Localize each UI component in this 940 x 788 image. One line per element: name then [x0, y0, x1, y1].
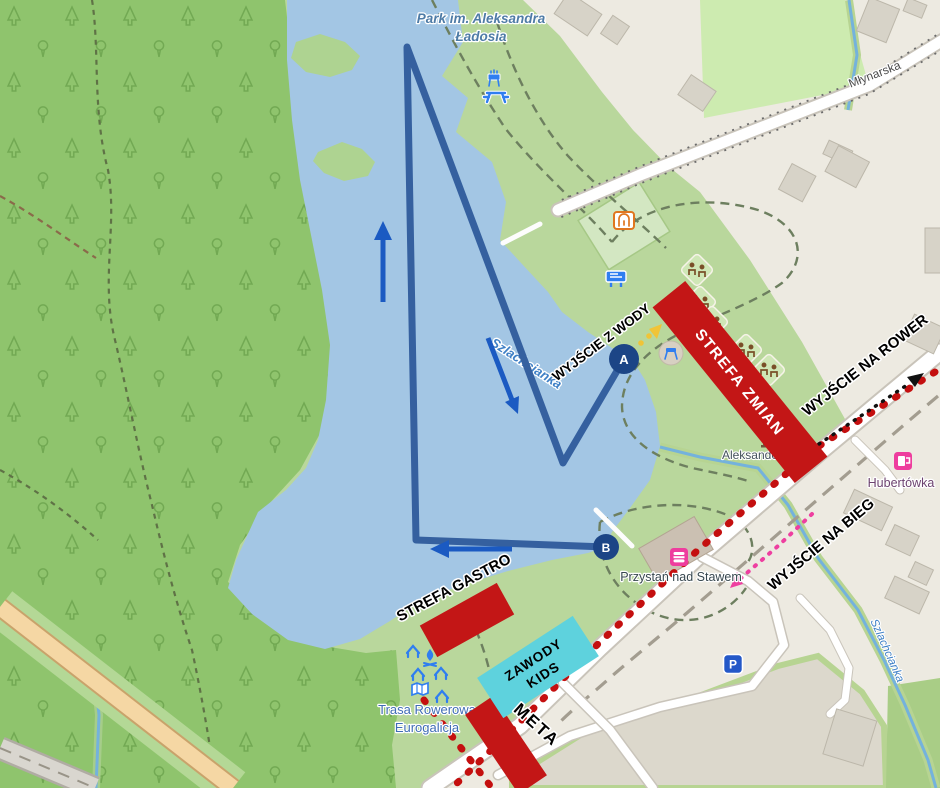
bike-route-label: Eurogalicja: [395, 720, 460, 735]
firepit-area: [659, 341, 683, 365]
guidepost-map-icon: [412, 683, 428, 695]
park-name-label: Park im. Aleksandra: [417, 11, 546, 26]
marker-a-water-exit: A: [609, 344, 639, 374]
pub-icon: [894, 452, 912, 470]
race-map: P Park im. Aleksandra Ładosia Młynarska …: [0, 0, 940, 788]
playground-icon: [614, 212, 634, 229]
fast-food-icon: [670, 548, 688, 566]
marker-b-swim-start: B: [593, 534, 619, 560]
marker-b-letter: B: [602, 541, 611, 555]
parking-icon: P: [724, 655, 743, 674]
parking-letter: P: [729, 658, 737, 672]
marker-a-letter: A: [619, 352, 629, 367]
bike-route-label: Trasa Rowerowa: [378, 702, 477, 717]
pub-label: Hubertówka: [868, 476, 935, 490]
park-name-label: Ładosia: [454, 29, 507, 44]
map-canvas: P Park im. Aleksandra Ładosia Młynarska …: [0, 0, 940, 788]
marina-label: Przystań nad Stawem: [620, 570, 742, 584]
